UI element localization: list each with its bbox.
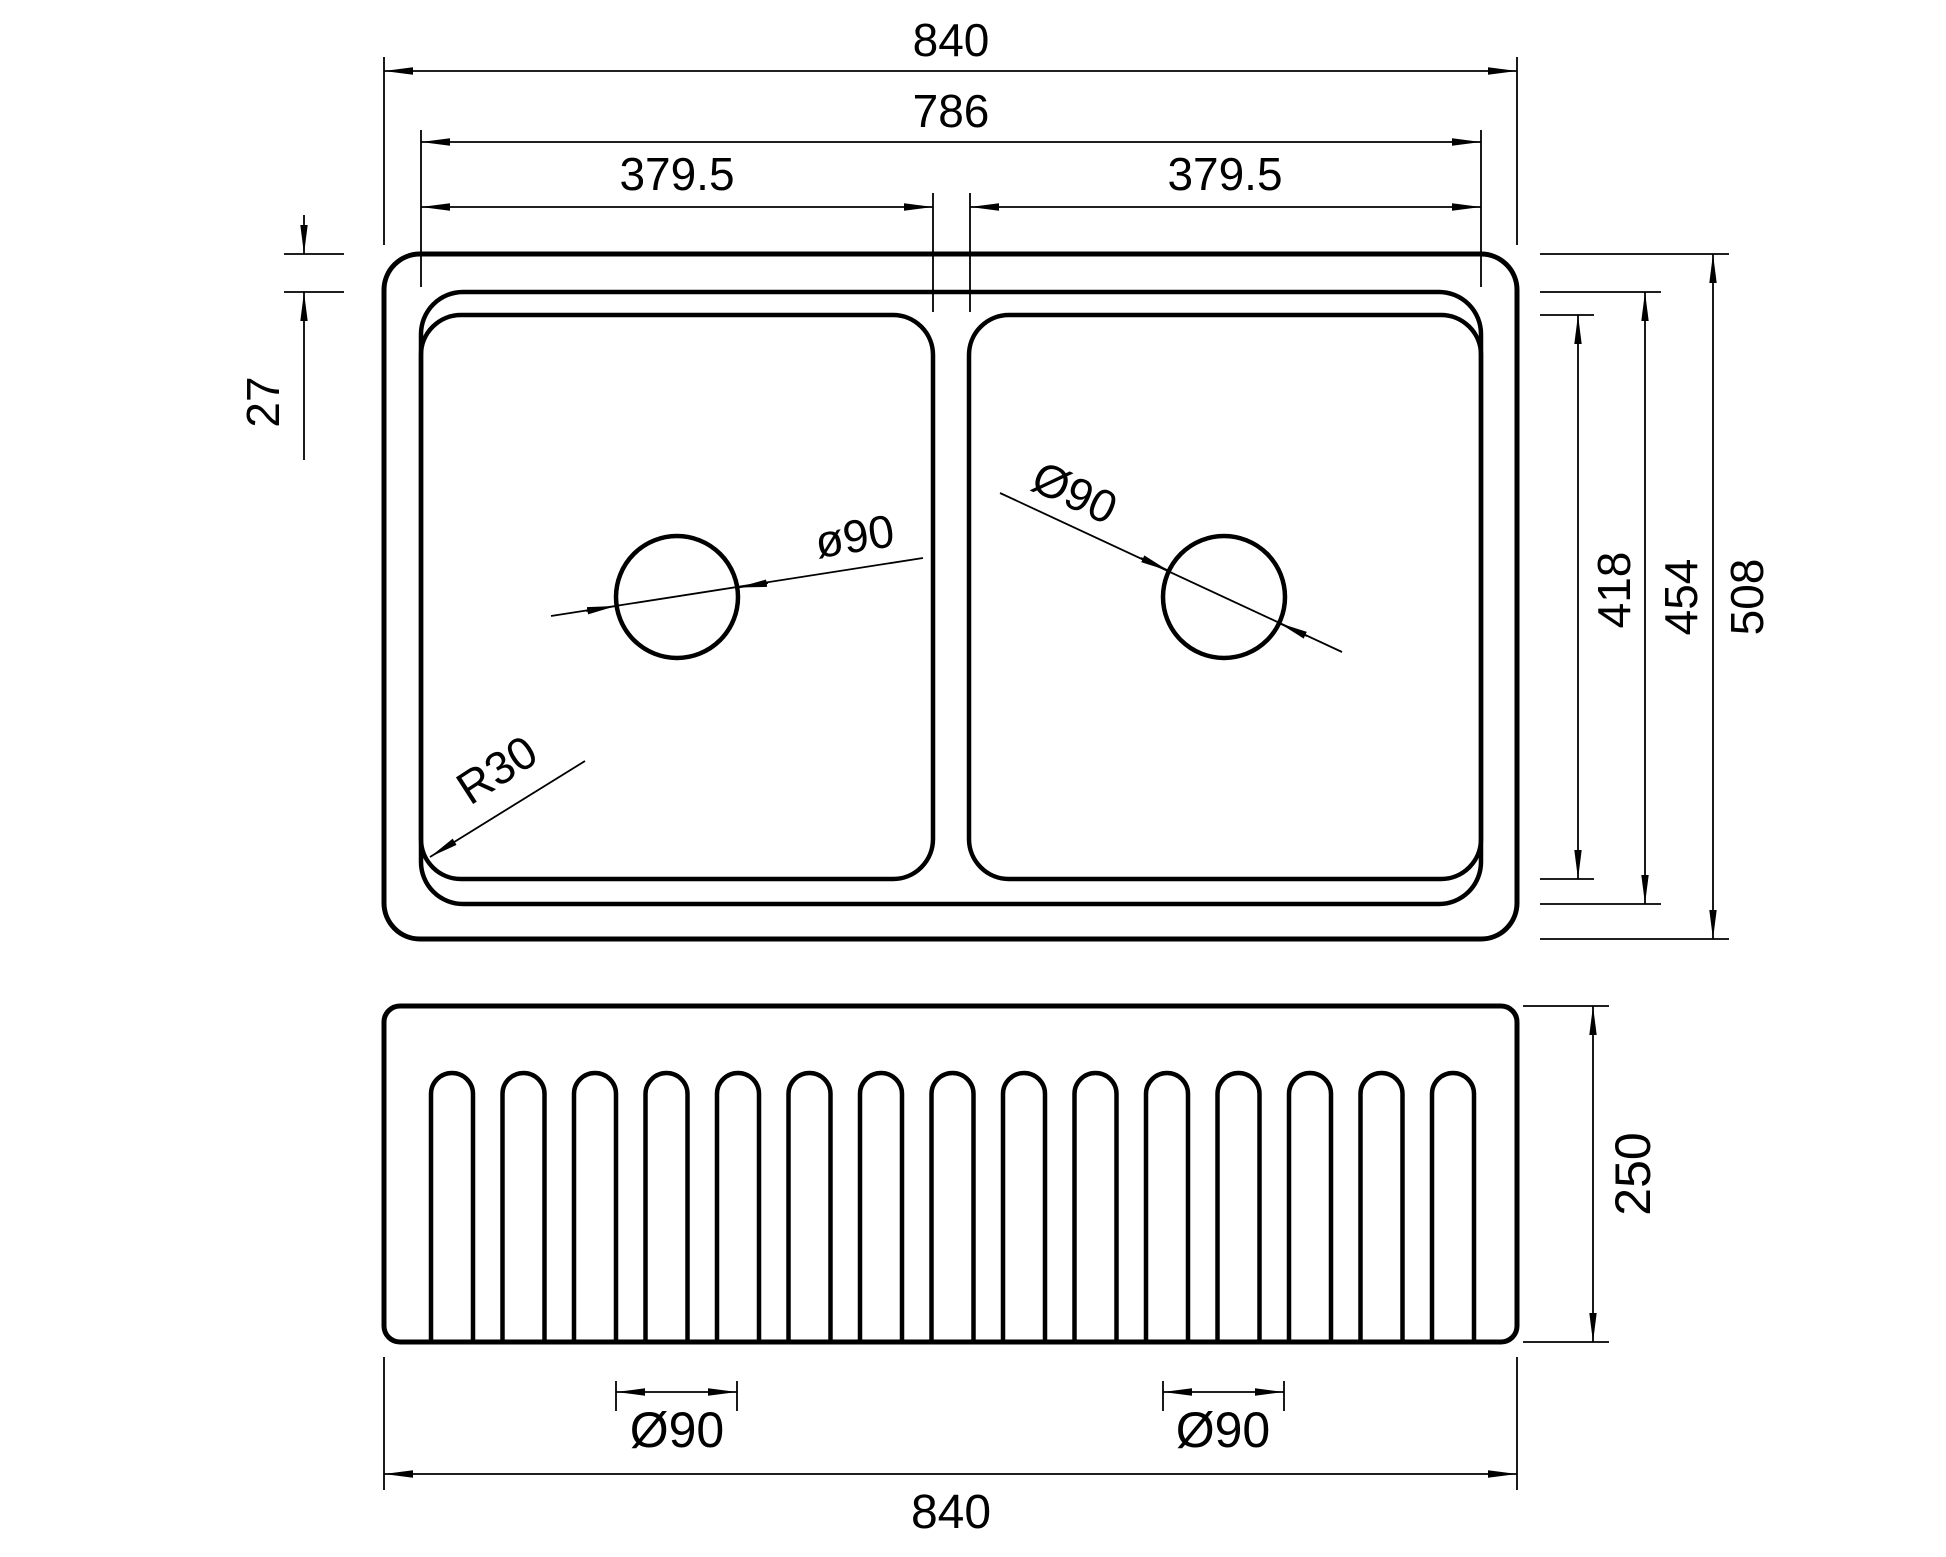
technical-drawing-page: 840 786 379.5 379.5 27 418 454 508 ø90 Ø…: [0, 0, 1946, 1557]
dim-overall-width-bottom: 840: [911, 1486, 991, 1539]
dim-overall-length: 508: [1721, 559, 1773, 636]
dim-inner-length: 454: [1655, 559, 1707, 636]
dim-overall-width-top: 840: [913, 14, 990, 66]
dim-front-height: 250: [1605, 1132, 1661, 1215]
dim-inner-width: 786: [913, 85, 990, 137]
dim-front-left-drain: Ø90: [630, 1402, 725, 1458]
dim-bowl-length: 418: [1588, 552, 1640, 629]
dim-left-bowl-width: 379.5: [619, 148, 734, 200]
sink-technical-drawing: 840 786 379.5 379.5 27 418 454 508 ø90 Ø…: [0, 0, 1946, 1557]
dim-front-right-drain: Ø90: [1176, 1402, 1271, 1458]
dim-rim-width: 27: [237, 376, 289, 427]
dim-right-bowl-width: 379.5: [1167, 148, 1282, 200]
